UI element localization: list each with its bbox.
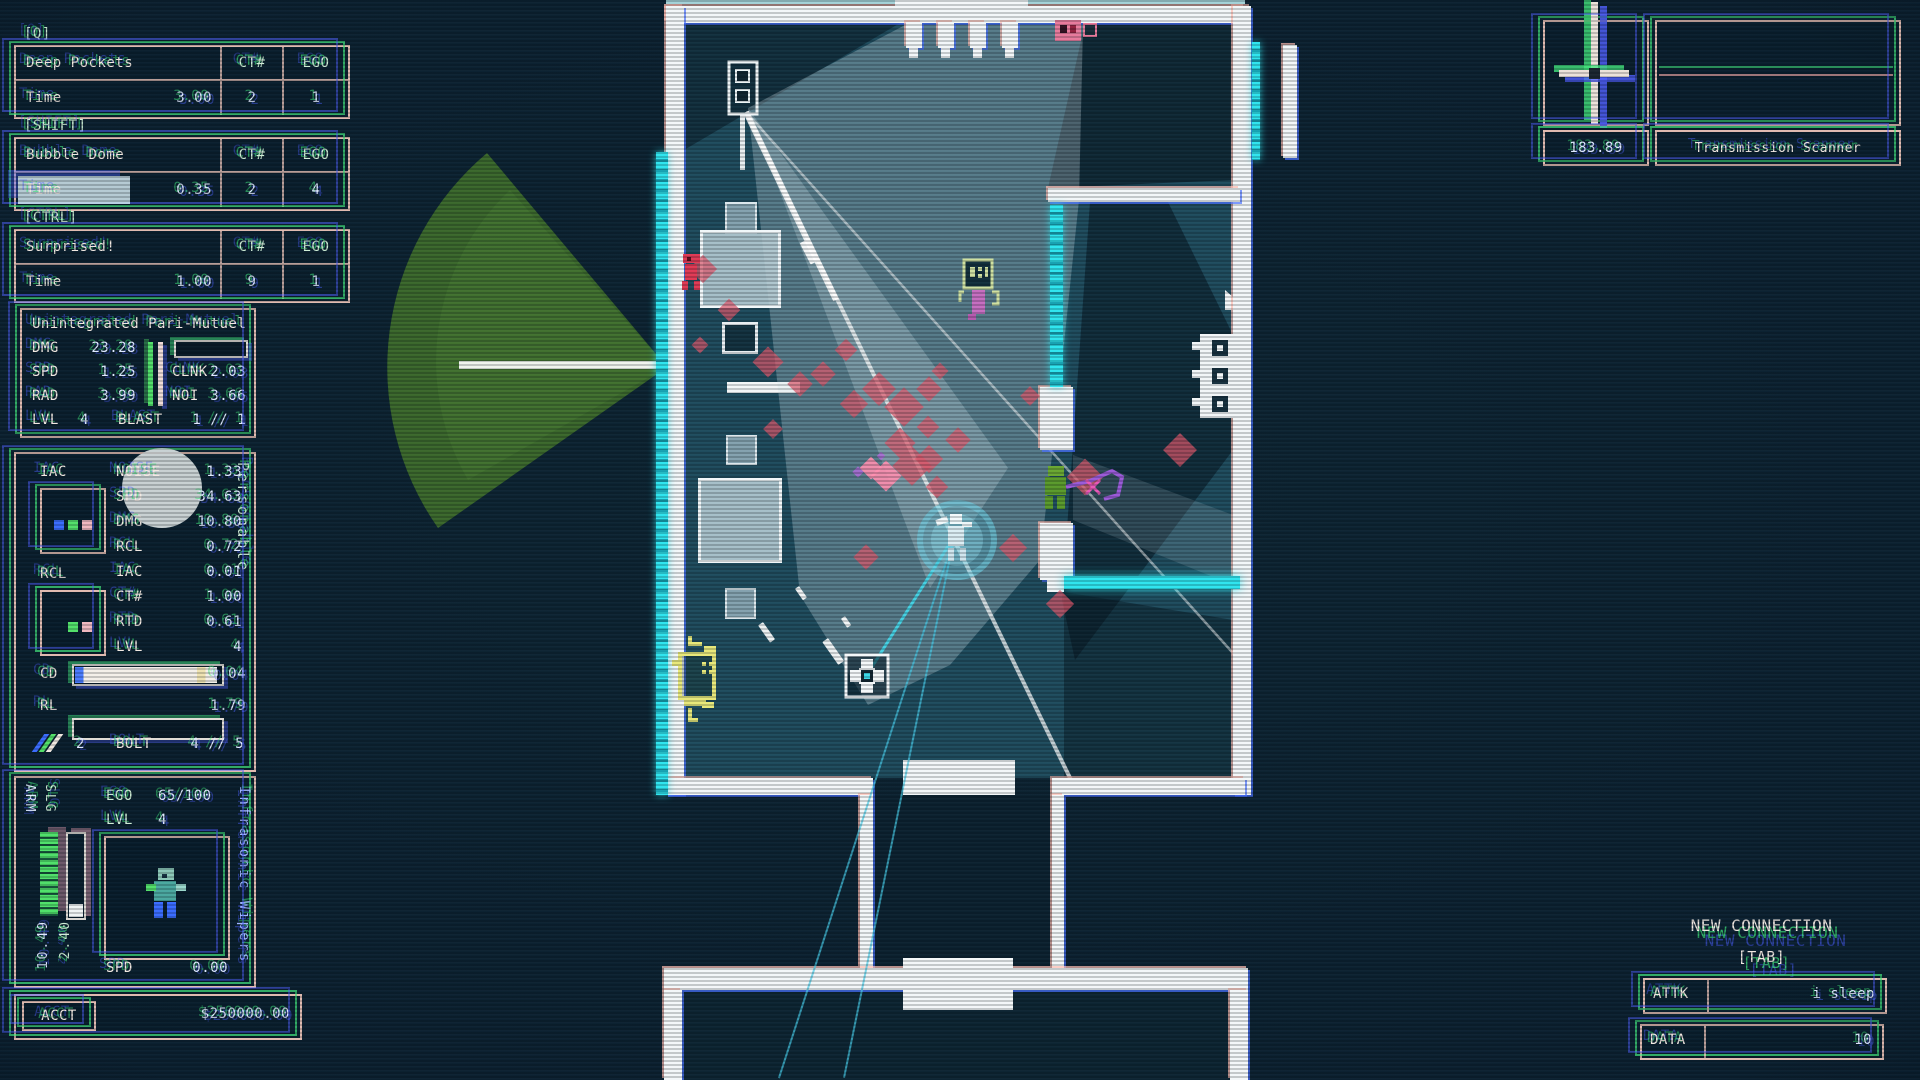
blast-value: 1 // 1	[176, 412, 246, 428]
dock-tooth	[1002, 22, 1018, 48]
stat-value: 1.33	[206, 464, 242, 480]
guard-red[interactable]	[681, 252, 707, 294]
hull-cyan-left	[656, 152, 668, 795]
lower-room-wall-left	[664, 990, 682, 1080]
account-panel: ACCT $250000.00	[14, 994, 302, 1040]
pink-beacon[interactable]	[1053, 18, 1099, 44]
stat-value: 0.01	[206, 564, 242, 580]
data-value: 10	[1854, 1032, 1872, 1048]
stat-label: DMG	[116, 514, 143, 530]
slot-pip-green	[68, 520, 78, 530]
stat-value: 0.61	[206, 614, 242, 630]
stat-label: SPD	[116, 489, 143, 505]
dock-tube-top	[895, 0, 1028, 22]
stat-value: 3.99	[78, 388, 136, 404]
secondary-stat-row: LVL4	[116, 639, 242, 664]
stat-label: LVL	[116, 639, 143, 655]
weapon-name: Unintegrated Pari-Mutuel	[32, 316, 246, 332]
ability-stat-label: Time	[26, 274, 62, 290]
turret-yellow[interactable]	[668, 632, 724, 726]
crosshair-center	[1589, 68, 1600, 79]
door-bottom[interactable]	[903, 760, 1015, 795]
secondary-stat-row: IAC0.01	[116, 564, 242, 589]
stat-value: 10.80	[197, 514, 242, 530]
scanner-crosshair-box	[1543, 20, 1649, 126]
scanner-name-box: Transmission Scanner	[1655, 130, 1901, 166]
stat-label: CT#	[116, 589, 143, 605]
bolt-value: 4 // 5	[176, 736, 244, 752]
stat-value: 1.00	[206, 589, 242, 605]
character-portrait-sprite	[140, 866, 194, 932]
crate	[698, 478, 782, 563]
crosshair-vertical	[1591, 2, 1598, 124]
acct-value: $250000.00	[201, 1006, 290, 1022]
stat-label: SPD	[32, 364, 59, 380]
wall-console[interactable]	[1192, 332, 1242, 420]
ability-stat-value: 0.35	[176, 182, 212, 198]
dock-stub	[941, 48, 950, 58]
scanner-name: Transmission Scanner	[1695, 141, 1862, 156]
corridor-wall-right	[1052, 795, 1064, 968]
stat-label: DMG	[32, 340, 59, 356]
tracer-bar-outside	[459, 361, 661, 369]
secondary-stat-row: CT#1.00	[116, 589, 242, 614]
ability-box[interactable]: Surprised!CT#EGOTime1.0091	[14, 229, 350, 303]
ammo-count: 2	[76, 736, 85, 752]
wall-bottom-right	[1052, 778, 1245, 795]
attk-row[interactable]: ATTK i sleep	[1643, 978, 1887, 1014]
ego-label: EGO	[106, 788, 133, 804]
slot-pip-blue	[54, 520, 64, 530]
lvl-label: LVL	[32, 412, 59, 428]
divider-bar-white	[158, 342, 163, 406]
secondary-stat-row: SPD34.63	[116, 489, 242, 514]
ego-header: EGO	[282, 47, 348, 81]
dock-tooth	[938, 22, 954, 48]
scanner-trace-green	[1659, 66, 1893, 68]
crate	[725, 588, 756, 619]
ability-ct-value: 2	[220, 173, 282, 207]
slot-pip-pink	[82, 622, 92, 632]
secondary-stat-row: RCL0.72	[116, 539, 242, 564]
ego-value: 65/100	[158, 788, 212, 804]
player-character[interactable]	[932, 508, 980, 570]
divider-bar-green	[148, 342, 153, 406]
stat-label: RTD	[116, 614, 143, 630]
ability-ego-value: 1	[282, 265, 348, 299]
stat-value: 4	[233, 639, 242, 655]
connection-title: NEW CONNECTION	[1640, 916, 1883, 935]
ability-hotkey: [SHIFT]	[24, 118, 350, 134]
acct-label: ACCT	[41, 1008, 77, 1024]
dock-stub	[1005, 48, 1014, 58]
rl-label: RL	[40, 698, 58, 714]
slot2-box[interactable]	[40, 590, 106, 656]
scanner-trace-pink	[1659, 74, 1893, 76]
secondary-stat-row: DMG10.80	[116, 514, 242, 539]
stat-label: RCL	[116, 539, 143, 555]
wall-bottom-left	[666, 778, 873, 795]
slg-value: 2.40	[58, 920, 73, 959]
secondary-stat-row: NOISE1.33	[116, 464, 242, 489]
ability-name: Deep Pockets	[16, 47, 220, 81]
ct-header: CT#	[220, 231, 282, 265]
guard-boxhead[interactable]	[958, 258, 1004, 322]
crate	[722, 322, 758, 354]
secondary-item-panel[interactable]: Personable IAC RCL NOISE1.33SPD34.63DMG1…	[14, 452, 256, 772]
blast-label: BLAST	[118, 412, 163, 428]
guard-whip[interactable]	[1040, 462, 1132, 514]
ego-header: EGO	[282, 231, 348, 265]
lvl-label: LVL	[106, 812, 133, 828]
door-lower[interactable]	[903, 958, 1013, 1010]
shadow-bottomright	[1064, 592, 1233, 778]
ability-name: Bubble Dome	[16, 139, 220, 173]
ability-stat-value: 3.00	[176, 90, 212, 106]
ability-ego-value: 4	[282, 173, 348, 207]
ability-hotkey: [Q]	[24, 26, 350, 42]
noi-value: 3.66	[188, 388, 246, 404]
clnk-value: 2.03	[188, 364, 246, 380]
scanner-reading-box: 183.89	[1543, 130, 1649, 166]
stat-value: 0.72	[206, 539, 242, 555]
stat-value: 1.25	[78, 364, 136, 380]
scanner-reading: 183.89	[1569, 140, 1623, 156]
game-screen: [Q]Deep PocketsCT#EGOTime3.0021[SHIFT]Bu…	[0, 0, 1920, 1080]
ability-stat-value: 1.00	[176, 274, 212, 290]
wall-inner-block-2	[1040, 523, 1073, 580]
ability-stat-label: Time	[26, 90, 62, 106]
cell-divider	[1704, 1026, 1706, 1058]
attk-label: ATTK	[1653, 986, 1689, 1002]
ammo-slashes-icon	[38, 734, 59, 756]
ability-name: Surprised!	[16, 231, 220, 265]
arm-bar	[66, 832, 86, 920]
slot-pip-green	[68, 622, 78, 632]
dock-stub	[973, 48, 982, 58]
energy-beam-horizontal	[1064, 576, 1240, 589]
connection-key: [TAB]	[1640, 948, 1883, 966]
bolt-label: BOLT	[116, 736, 152, 752]
weapon-charge-bar	[174, 340, 248, 358]
character-panel[interactable]: ARM SLG 2.40 10.49 EGO 65/100 LVL 4 Infr…	[14, 776, 256, 988]
secondary-stats-list: NOISE1.33SPD34.63DMG10.80RCL0.72IAC0.01C…	[116, 464, 242, 664]
portrait-box	[104, 836, 230, 960]
gadget-crossbox[interactable]	[843, 652, 891, 700]
slot1-box[interactable]	[40, 488, 106, 554]
ct-header: CT#	[220, 139, 282, 173]
ability-stat-label: Time	[26, 182, 62, 198]
cell-divider	[1707, 980, 1709, 1012]
slot-pip-pink	[82, 520, 92, 530]
slot2-label: RCL	[40, 566, 67, 582]
dock-stub	[909, 48, 918, 58]
scanner-display-box	[1655, 20, 1901, 126]
lower-room-wall-right	[1230, 990, 1248, 1080]
arm-label: ARM	[22, 784, 37, 813]
wall-inner-block-1	[1040, 387, 1073, 450]
cd-value: 0.04	[196, 666, 246, 682]
stat-value: 34.63	[197, 489, 242, 505]
crate	[726, 435, 757, 465]
attk-value: i sleep	[1812, 986, 1875, 1002]
stat-value: 23.28	[78, 340, 136, 356]
security-camera[interactable]	[725, 52, 765, 174]
weapon-panel[interactable]: Unintegrated Pari-Mutuel DMG 23.28 SPD 1…	[20, 308, 256, 438]
secondary-stat-row: RTD0.61	[116, 614, 242, 639]
dock-tooth	[970, 22, 986, 48]
ability-panel[interactable]: [CTRL]Surprised!CT#EGOTime1.0091	[14, 210, 350, 303]
stat-label: IAC	[116, 564, 143, 580]
outer-airlock-bar	[1283, 45, 1297, 158]
slg-bar	[40, 832, 58, 916]
rl-value: 1.79	[196, 698, 246, 714]
dock-tooth	[906, 22, 922, 48]
wall-inner-stub	[1047, 580, 1064, 592]
lvl-value: 4	[158, 812, 167, 828]
data-row[interactable]: DATA 10	[1640, 1024, 1884, 1060]
slg-label: SLG	[42, 784, 57, 813]
character-name: Infrasonic Wipers	[236, 786, 252, 963]
ability-ego-value: 1	[282, 81, 348, 115]
wall-inner-horizontal	[1048, 188, 1240, 202]
data-label: DATA	[1650, 1032, 1686, 1048]
slot1-label: IAC	[40, 464, 67, 480]
ego-header: EGO	[282, 139, 348, 173]
hull-cyan-right	[1252, 42, 1260, 160]
ct-header: CT#	[220, 47, 282, 81]
stat-label: NOISE	[116, 464, 161, 480]
ability-hotkey: [CTRL]	[24, 210, 350, 226]
spd-value: 0.00	[166, 960, 228, 976]
spd-label: SPD	[106, 960, 133, 976]
shadow-right-wedge	[1062, 202, 1233, 660]
stat-label: RAD	[32, 388, 59, 404]
ability-panel[interactable]: [Q]Deep PocketsCT#EGOTime3.0021	[14, 26, 350, 119]
ability-panel[interactable]: [SHIFT]Bubble DomeCT#EGOTime0.3524	[14, 118, 350, 211]
ability-ct-value: 9	[220, 265, 282, 299]
energy-wall-vertical	[1050, 205, 1063, 387]
lvl-value: 4	[80, 412, 89, 428]
ability-ct-value: 2	[220, 81, 282, 115]
ability-box[interactable]: Bubble DomeCT#EGOTime0.3524	[14, 137, 350, 211]
ability-box[interactable]: Deep PocketsCT#EGOTime3.0021	[14, 45, 350, 119]
cd-label: CD	[40, 666, 58, 682]
arm-value: 10.49	[36, 920, 51, 969]
